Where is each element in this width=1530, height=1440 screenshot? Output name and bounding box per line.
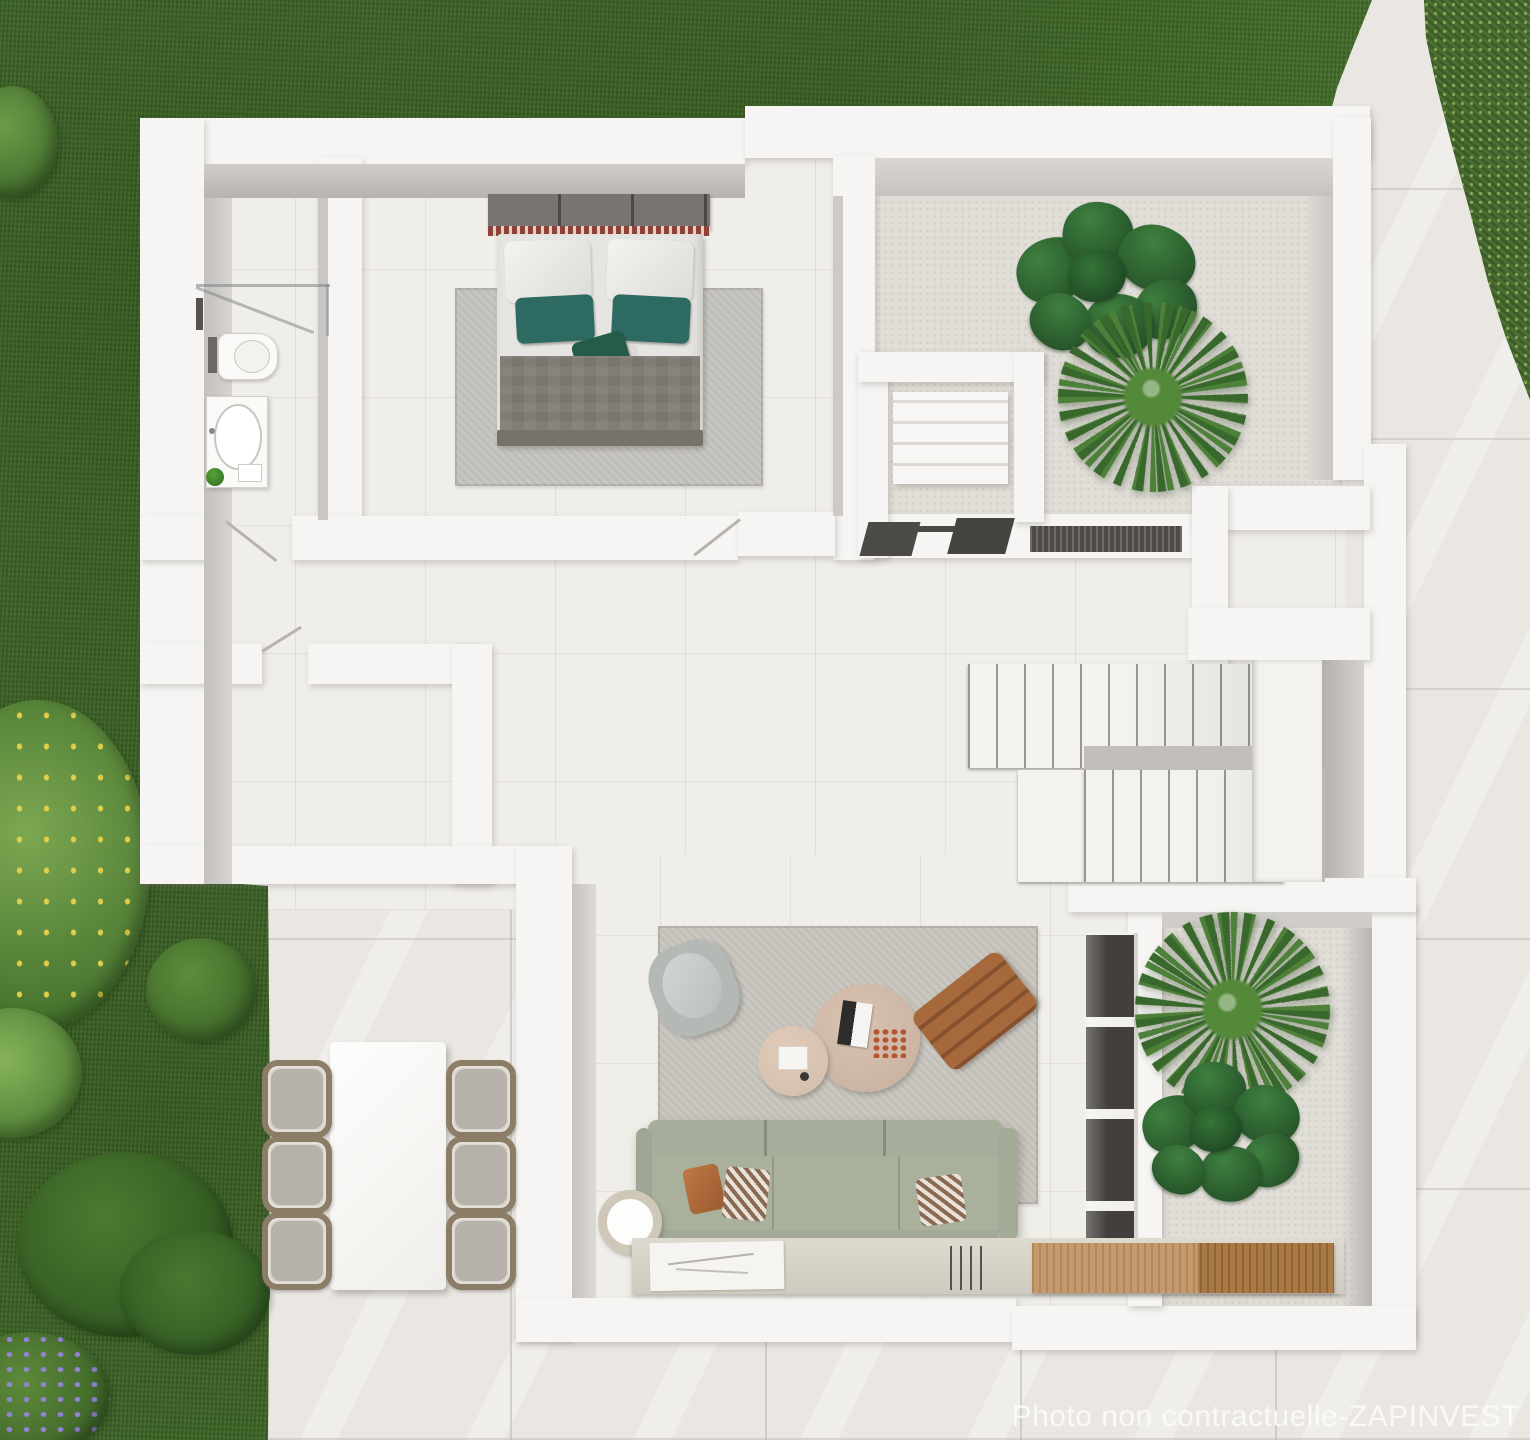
sofa-back-cushions	[648, 1120, 1002, 1160]
chair-cushion	[455, 1221, 507, 1281]
wall-planter-bottom	[1012, 1306, 1416, 1350]
dining-chair	[446, 1136, 516, 1214]
wall-face	[572, 884, 596, 1298]
sofa	[636, 1118, 1020, 1254]
wall-face	[875, 158, 1333, 196]
bed-blanket	[500, 356, 700, 430]
dining-chair	[262, 1212, 332, 1290]
chair-cushion	[271, 1145, 323, 1205]
bed-headboard	[488, 194, 710, 230]
wall-living-bottom	[516, 1298, 1016, 1342]
stair-landing-step	[1018, 770, 1084, 882]
toilet-tank	[208, 337, 217, 373]
linen-cabinet	[893, 392, 1008, 484]
dining-chair	[262, 1136, 332, 1214]
tray	[778, 1046, 808, 1070]
front-door-rail	[910, 526, 958, 532]
dining-table	[330, 1042, 446, 1290]
dining-chair	[446, 1212, 516, 1290]
bathroom-plant	[206, 468, 224, 486]
wall-face	[1322, 660, 1364, 878]
wall-face	[833, 196, 843, 516]
wall-below-stairs	[1068, 878, 1416, 912]
chair-cushion	[455, 1069, 507, 1129]
shower-glass-panel	[196, 284, 330, 287]
throw-pillow-checkered	[721, 1166, 770, 1222]
console-slats	[950, 1246, 988, 1290]
wall-face	[204, 164, 745, 198]
shower-column	[196, 298, 203, 330]
wall-right-upper	[1333, 118, 1371, 480]
stair-landing	[1252, 660, 1322, 882]
fig-plant	[1138, 1062, 1308, 1232]
dining-chair	[262, 1060, 332, 1138]
garden-bush-dark	[120, 1230, 270, 1355]
flower-sprig	[872, 1028, 906, 1058]
watermark-text: Photo non contractuelle-ZAPINVEST	[1012, 1400, 1520, 1434]
chair-cushion	[455, 1145, 507, 1205]
shower-glass-side	[326, 284, 329, 336]
wall-right-lower	[1372, 904, 1416, 1338]
toilet-seat	[234, 340, 270, 373]
wall-bottom-left	[140, 846, 560, 884]
chair-cushion	[271, 1221, 323, 1281]
wall-face	[1307, 196, 1333, 480]
wall-left	[140, 118, 204, 884]
chair-cushion	[271, 1069, 323, 1129]
wall-storage-top	[140, 644, 262, 684]
bed-pillow-teal	[515, 294, 595, 344]
wall-hall-segment	[292, 516, 738, 560]
armchair-cushion	[653, 945, 730, 1027]
bed-frame-foot	[497, 430, 703, 446]
wall-face	[1340, 928, 1372, 1306]
wall-stair-header	[1188, 608, 1370, 660]
bathtub-basin	[214, 404, 262, 470]
wall-hall-segment	[738, 512, 835, 556]
wall-top-right	[745, 106, 1370, 158]
wall-face	[318, 198, 328, 520]
faucet	[209, 428, 215, 434]
sofa-armrest-right	[998, 1128, 1018, 1240]
wooden-mat	[1032, 1243, 1334, 1293]
book	[837, 1000, 873, 1048]
wall-right-mid	[1364, 444, 1406, 910]
wall-living-left	[516, 846, 572, 1340]
dining-chair	[446, 1060, 516, 1138]
front-door-leaf	[947, 518, 1015, 554]
floor-plan-scene: Photo non contractuelle-ZAPINVEST	[0, 0, 1530, 1440]
throw-pillow-checkered	[915, 1173, 967, 1227]
bath-tray	[238, 464, 262, 482]
garden-bush	[146, 938, 256, 1042]
art-paper	[650, 1241, 785, 1291]
cup	[800, 1072, 809, 1081]
entry-doormat	[1030, 526, 1182, 552]
wall-top-left	[140, 118, 745, 164]
